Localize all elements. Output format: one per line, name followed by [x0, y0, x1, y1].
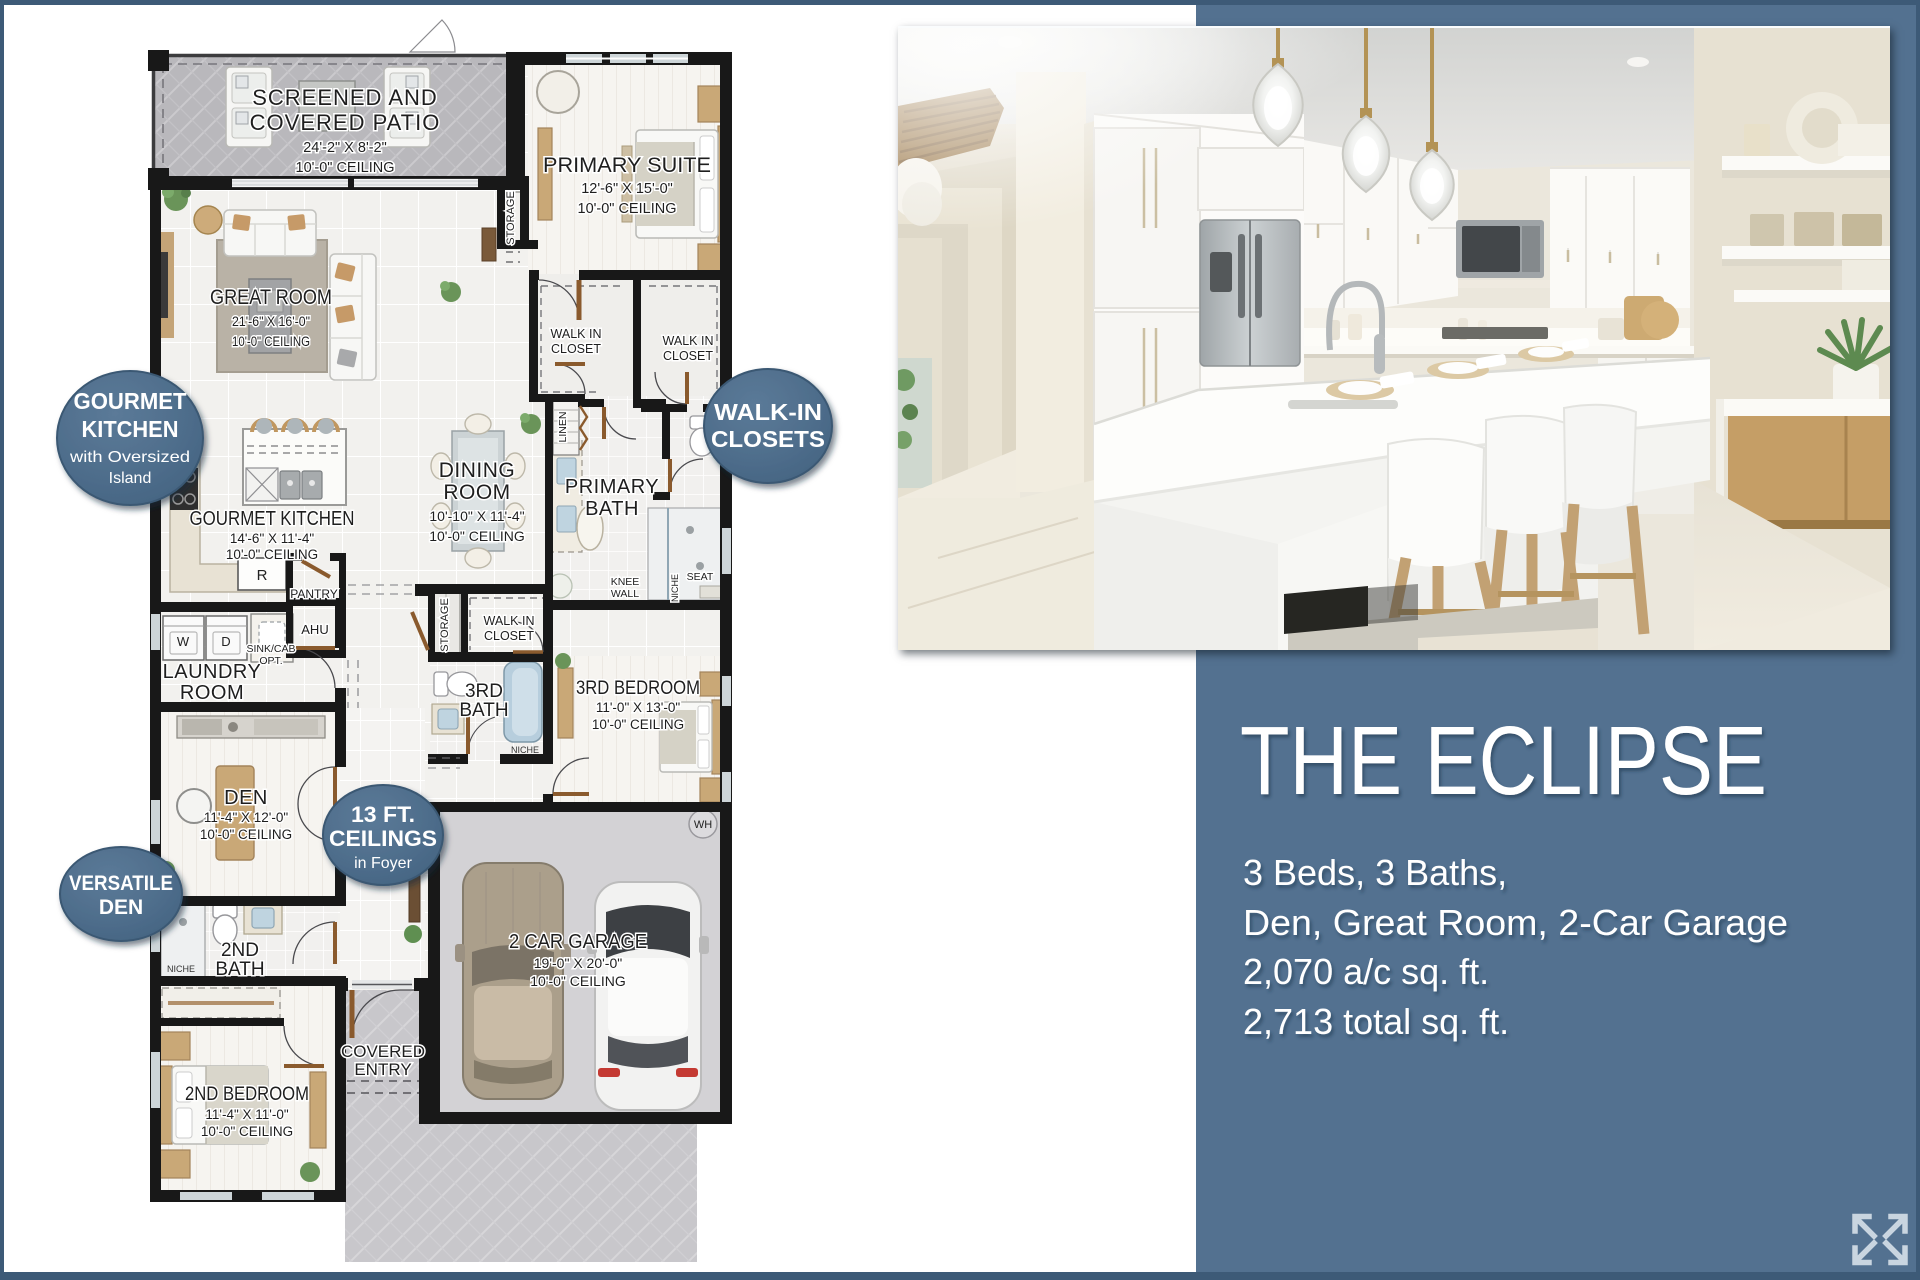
svg-text:ROOM: ROOM	[443, 481, 510, 504]
svg-text:3RD BEDROOM: 3RD BEDROOM	[576, 678, 700, 699]
svg-text:10'-0" CEILING: 10'-0" CEILING	[226, 547, 318, 562]
svg-text:WALK IN: WALK IN	[484, 614, 535, 628]
svg-text:CLOSET: CLOSET	[484, 629, 534, 643]
svg-text:BATH: BATH	[215, 959, 264, 980]
svg-text:10'-0" CEILING: 10'-0" CEILING	[578, 201, 677, 217]
svg-text:PRIMARY: PRIMARY	[565, 476, 659, 498]
svg-text:LINEN: LINEN	[557, 412, 569, 443]
svg-text:PANTRY: PANTRY	[290, 587, 338, 601]
svg-text:10'-0" CEILING: 10'-0" CEILING	[200, 827, 292, 842]
svg-text:11'-0" X 13'-0": 11'-0" X 13'-0"	[596, 700, 680, 715]
svg-text:11'-4" X 12'-0": 11'-4" X 12'-0"	[204, 810, 288, 825]
svg-text:10'-0" CEILING: 10'-0" CEILING	[296, 160, 395, 176]
svg-text:SEAT: SEAT	[687, 571, 714, 583]
svg-text:10'-10" X 11'-4": 10'-10" X 11'-4"	[429, 508, 524, 524]
svg-text:WALK-IN: WALK-IN	[714, 399, 822, 425]
svg-text:13 FT.: 13 FT.	[351, 802, 415, 827]
svg-text:10'-0" CEILING: 10'-0" CEILING	[232, 333, 310, 349]
svg-text:WALL: WALL	[611, 588, 639, 600]
svg-text:Den, Great Room, 2-Car Garage: Den, Great Room, 2-Car Garage	[1243, 902, 1788, 943]
svg-text:AHU: AHU	[301, 622, 328, 637]
svg-text:10'-0" CEILING: 10'-0" CEILING	[592, 717, 684, 732]
svg-text:ENTRY: ENTRY	[354, 1060, 411, 1079]
svg-text:14'-6" X 11'-4": 14'-6" X 11'-4"	[230, 531, 314, 546]
svg-text:3 Beds, 3 Baths,: 3 Beds, 3 Baths,	[1243, 852, 1507, 893]
svg-text:2ND BEDROOM: 2ND BEDROOM	[185, 1084, 309, 1105]
svg-text:ROOM: ROOM	[180, 682, 244, 704]
svg-text:OPT.: OPT.	[259, 655, 282, 667]
svg-text:R: R	[257, 567, 268, 584]
svg-text:NICHE: NICHE	[167, 964, 195, 974]
svg-text:CEILINGS: CEILINGS	[329, 826, 437, 851]
svg-text:SINK/CAB: SINK/CAB	[246, 643, 295, 655]
svg-text:GREAT ROOM: GREAT ROOM	[210, 286, 332, 309]
svg-text:10'-0" CEILING: 10'-0" CEILING	[201, 1124, 293, 1139]
svg-text:D: D	[221, 634, 230, 649]
svg-text:Island: Island	[109, 470, 152, 487]
svg-text:DEN: DEN	[224, 787, 268, 809]
svg-text:19'-0" X 20'-0": 19'-0" X 20'-0"	[534, 955, 622, 971]
svg-text:21'-6" X 16'-0": 21'-6" X 16'-0"	[232, 313, 310, 329]
svg-text:CLOSETS: CLOSETS	[711, 426, 825, 452]
svg-text:THE ECLIPSE: THE ECLIPSE	[1240, 706, 1767, 815]
svg-text:2ND: 2ND	[221, 940, 259, 961]
svg-text:10'-0" CEILING: 10'-0" CEILING	[429, 528, 525, 544]
svg-text:DINING: DINING	[439, 459, 516, 482]
svg-text:BATH: BATH	[585, 498, 639, 520]
svg-text:STORAGE: STORAGE	[439, 598, 451, 652]
svg-text:COVERED PATIO: COVERED PATIO	[250, 110, 441, 135]
svg-text:with Oversized: with Oversized	[69, 449, 190, 466]
svg-text:3RD: 3RD	[465, 681, 503, 702]
svg-text:GOURMET KITCHEN: GOURMET KITCHEN	[190, 508, 355, 530]
svg-text:SCREENED AND: SCREENED AND	[252, 85, 438, 110]
svg-text:COVERED: COVERED	[341, 1042, 425, 1061]
svg-text:2 CAR GARAGE: 2 CAR GARAGE	[509, 931, 647, 953]
svg-text:in Foyer: in Foyer	[354, 855, 412, 872]
svg-text:2,070 a/c sq. ft.: 2,070 a/c sq. ft.	[1243, 951, 1489, 992]
svg-text:CLOSET: CLOSET	[551, 342, 601, 356]
svg-text:STORAGE: STORAGE	[505, 191, 517, 245]
svg-text:12'-6" X 15'-0": 12'-6" X 15'-0"	[581, 181, 673, 197]
svg-text:KITCHEN: KITCHEN	[82, 416, 179, 442]
svg-text:KNEE: KNEE	[611, 576, 640, 588]
svg-text:CLOSET: CLOSET	[663, 349, 713, 363]
svg-text:WALK IN: WALK IN	[663, 334, 714, 348]
svg-text:BATH: BATH	[459, 700, 508, 721]
svg-text:NICHE: NICHE	[670, 574, 680, 602]
svg-text:GOURMET: GOURMET	[74, 388, 187, 414]
svg-text:2,713 total sq. ft.: 2,713 total sq. ft.	[1243, 1001, 1509, 1042]
svg-text:VERSATILE: VERSATILE	[69, 872, 173, 895]
svg-text:10'-0" CEILING: 10'-0" CEILING	[530, 973, 626, 989]
svg-text:DEN: DEN	[99, 896, 143, 919]
svg-text:WH: WH	[694, 819, 712, 831]
svg-text:PRIMARY SUITE: PRIMARY SUITE	[543, 154, 711, 177]
svg-text:NICHE: NICHE	[511, 745, 539, 755]
svg-text:LAUNDRY: LAUNDRY	[163, 661, 262, 683]
svg-text:W: W	[177, 634, 190, 649]
svg-text:11'-4" X 11'-0": 11'-4" X 11'-0"	[205, 1107, 288, 1122]
svg-text:24'-2" X 8'-2": 24'-2" X 8'-2"	[303, 140, 387, 156]
svg-text:WALK IN: WALK IN	[551, 327, 602, 341]
